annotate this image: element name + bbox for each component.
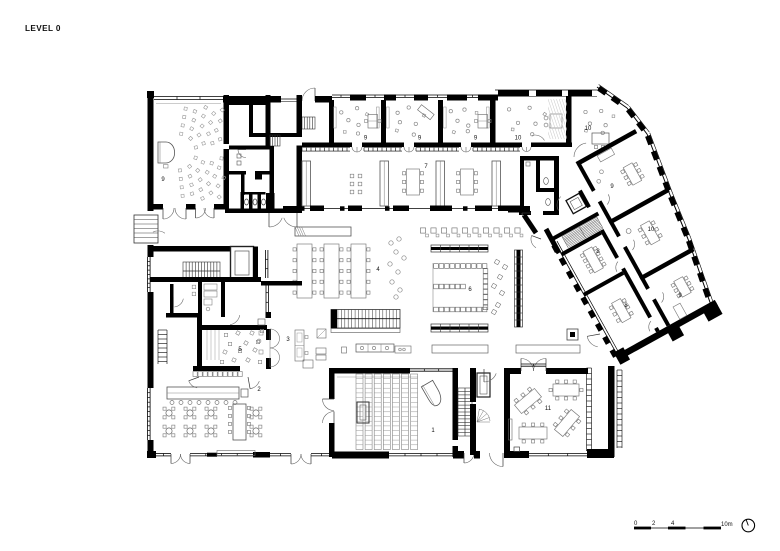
- svg-text:10: 10: [585, 126, 592, 132]
- svg-text:11: 11: [545, 406, 552, 412]
- svg-text:10: 10: [515, 136, 522, 142]
- svg-text:10: 10: [648, 227, 655, 233]
- svg-text:LEVEL 0: LEVEL 0: [25, 24, 61, 33]
- svg-text:10m: 10m: [721, 522, 733, 528]
